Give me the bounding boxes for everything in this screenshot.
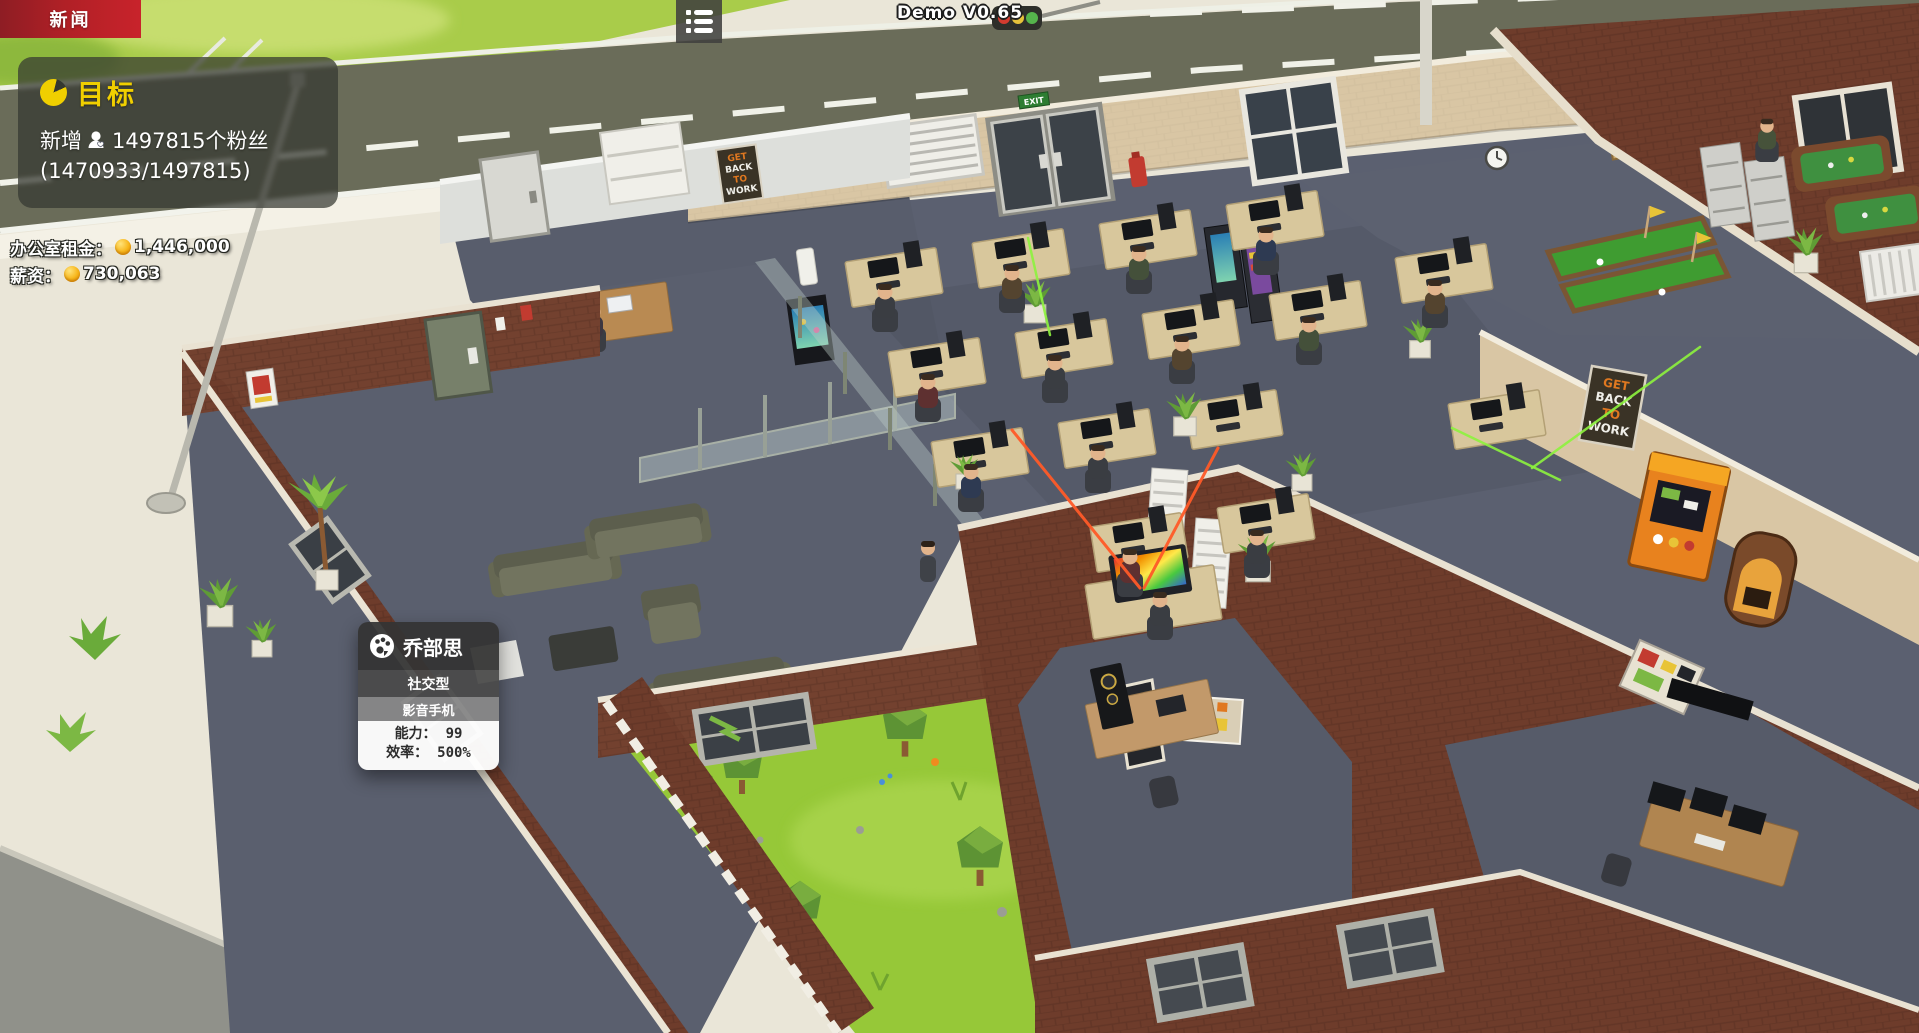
character-name: 乔部思 xyxy=(403,632,463,661)
salary-value: 730,063 xyxy=(83,264,160,284)
goal-progress: (1470933/1497815) xyxy=(40,159,316,183)
motivation-poster-2: GET BACK TO WORK xyxy=(1579,366,1646,449)
character-specialty: 影音手机 xyxy=(358,697,499,721)
person-heart-icon xyxy=(86,129,108,151)
wall-clock xyxy=(1486,147,1508,169)
news-label: 新闻 xyxy=(50,6,92,32)
window xyxy=(1242,79,1346,183)
coin-icon xyxy=(64,266,80,282)
tooltip-header: 乔部思 xyxy=(358,622,499,670)
character-personality: 社交型 xyxy=(358,670,499,697)
goal-text: 新增 1497815个粉丝 xyxy=(40,125,316,155)
list-icon xyxy=(686,10,713,15)
rent-row: 办公室租金： 1,446,000 xyxy=(10,236,230,258)
game-viewport[interactable]: EXIT xyxy=(0,0,1919,1033)
goal-panel: 目标 新增 1497815个粉丝 (1470933/1497815) xyxy=(18,57,338,208)
tooltip-stats: 能力： 99 效率： 500% xyxy=(358,721,499,770)
motivation-poster: GET BACK TO WORK xyxy=(716,144,763,203)
light-pole xyxy=(1420,0,1432,125)
coin-icon xyxy=(115,239,131,255)
salary-label: 薪资： xyxy=(10,262,61,287)
pie-timer-icon xyxy=(40,79,67,106)
svg-text:TO: TO xyxy=(733,174,748,186)
salary-row: 薪资： 730,063 xyxy=(10,263,230,285)
efficiency-stat: 效率： 500% xyxy=(358,744,499,763)
menu-button[interactable] xyxy=(676,0,722,43)
finance-summary: 办公室租金： 1,446,000 薪资： 730,063 xyxy=(10,236,230,285)
news-button[interactable]: 新闻 xyxy=(0,0,141,38)
version-label: Demo V0.65 xyxy=(860,3,1060,23)
rent-label: 办公室租金： xyxy=(10,235,112,260)
character-tooltip: 乔部思 社交型 影音手机 能力： 99 效率： 500% xyxy=(358,622,499,770)
ability-stat: 能力： 99 xyxy=(358,725,499,744)
goal-title: 目标 xyxy=(77,73,137,112)
palette-icon xyxy=(369,633,395,659)
entrance-door[interactable] xyxy=(985,102,1116,217)
rent-value: 1,446,000 xyxy=(134,237,230,257)
